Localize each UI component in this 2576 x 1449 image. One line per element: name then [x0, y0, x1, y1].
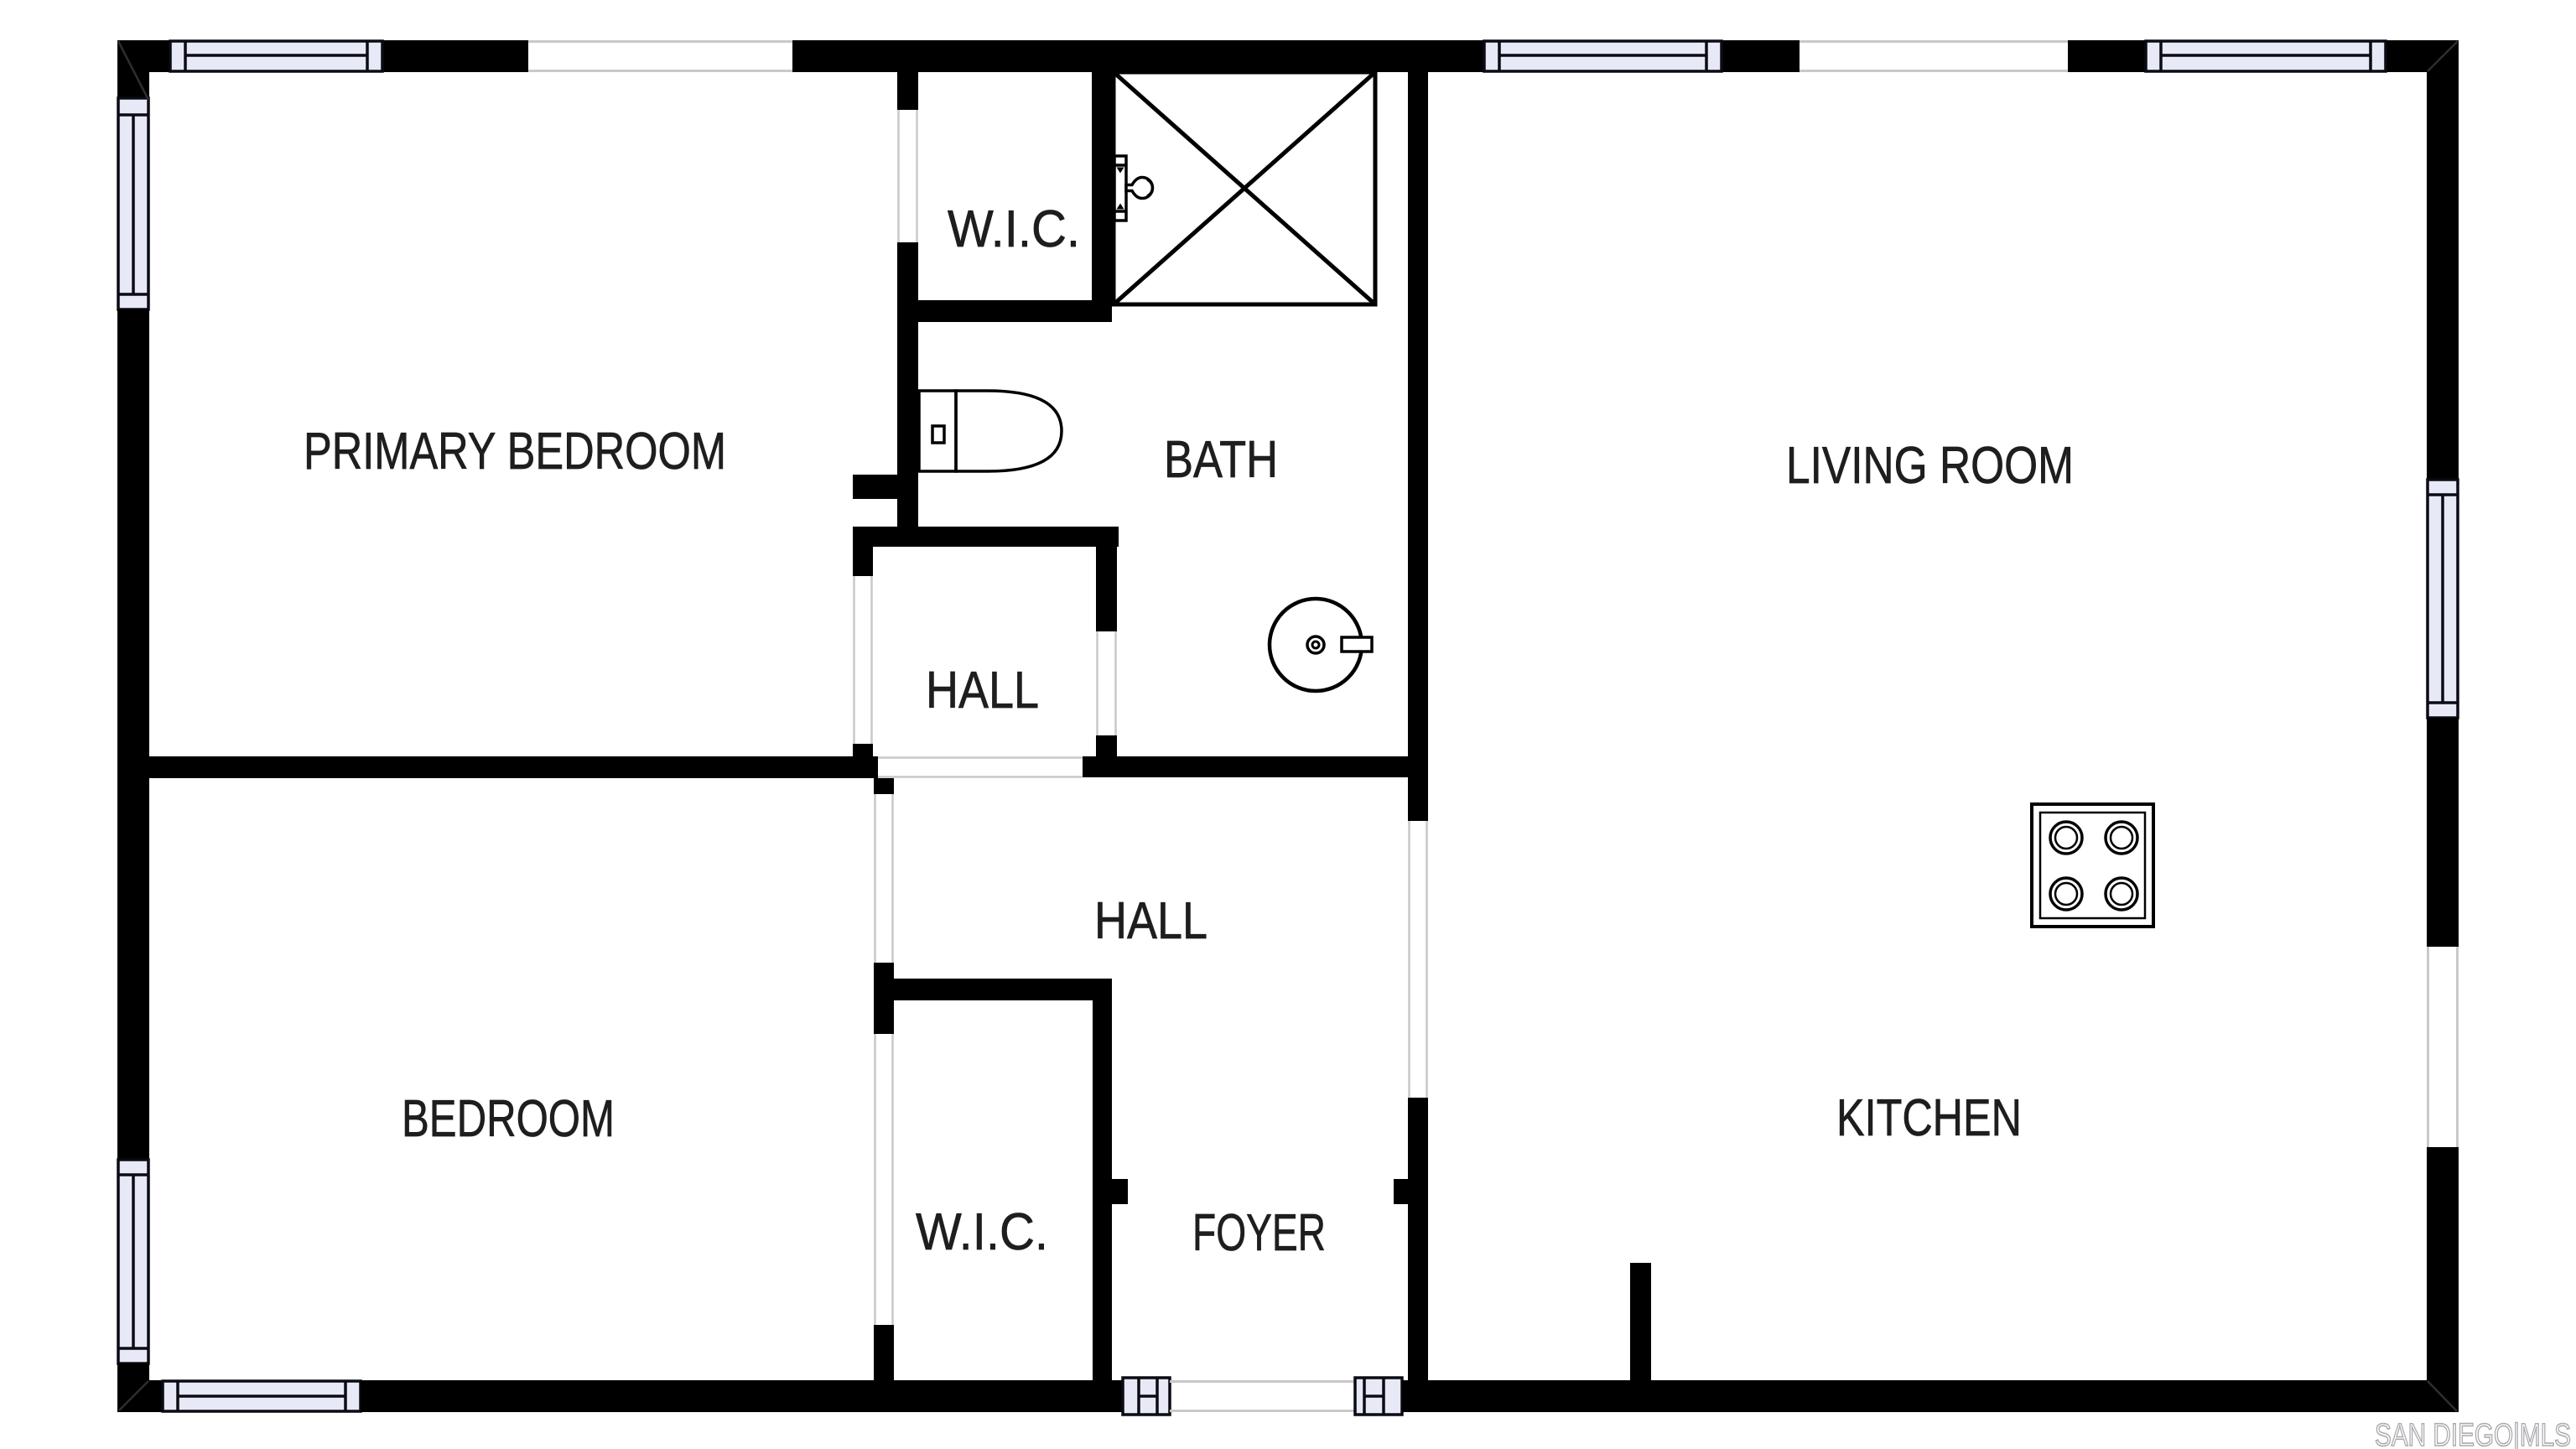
svg-text:SAN DIEGO|MLS: SAN DIEGO|MLS	[2375, 1418, 2571, 1449]
svg-text:BATH: BATH	[1164, 431, 1278, 489]
svg-text:HALL: HALL	[1094, 892, 1207, 950]
svg-text:LIVING ROOM: LIVING ROOM	[1786, 437, 2074, 495]
svg-text:W.I.C.: W.I.C.	[916, 1203, 1048, 1261]
svg-text:W.I.C.: W.I.C.	[948, 200, 1080, 258]
svg-text:FOYER: FOYER	[1192, 1204, 1326, 1262]
svg-text:BEDROOM: BEDROOM	[402, 1090, 615, 1148]
svg-text:HALL: HALL	[926, 662, 1039, 719]
svg-text:PRIMARY BEDROOM: PRIMARY BEDROOM	[304, 423, 726, 480]
svg-text:KITCHEN: KITCHEN	[1836, 1089, 2022, 1147]
